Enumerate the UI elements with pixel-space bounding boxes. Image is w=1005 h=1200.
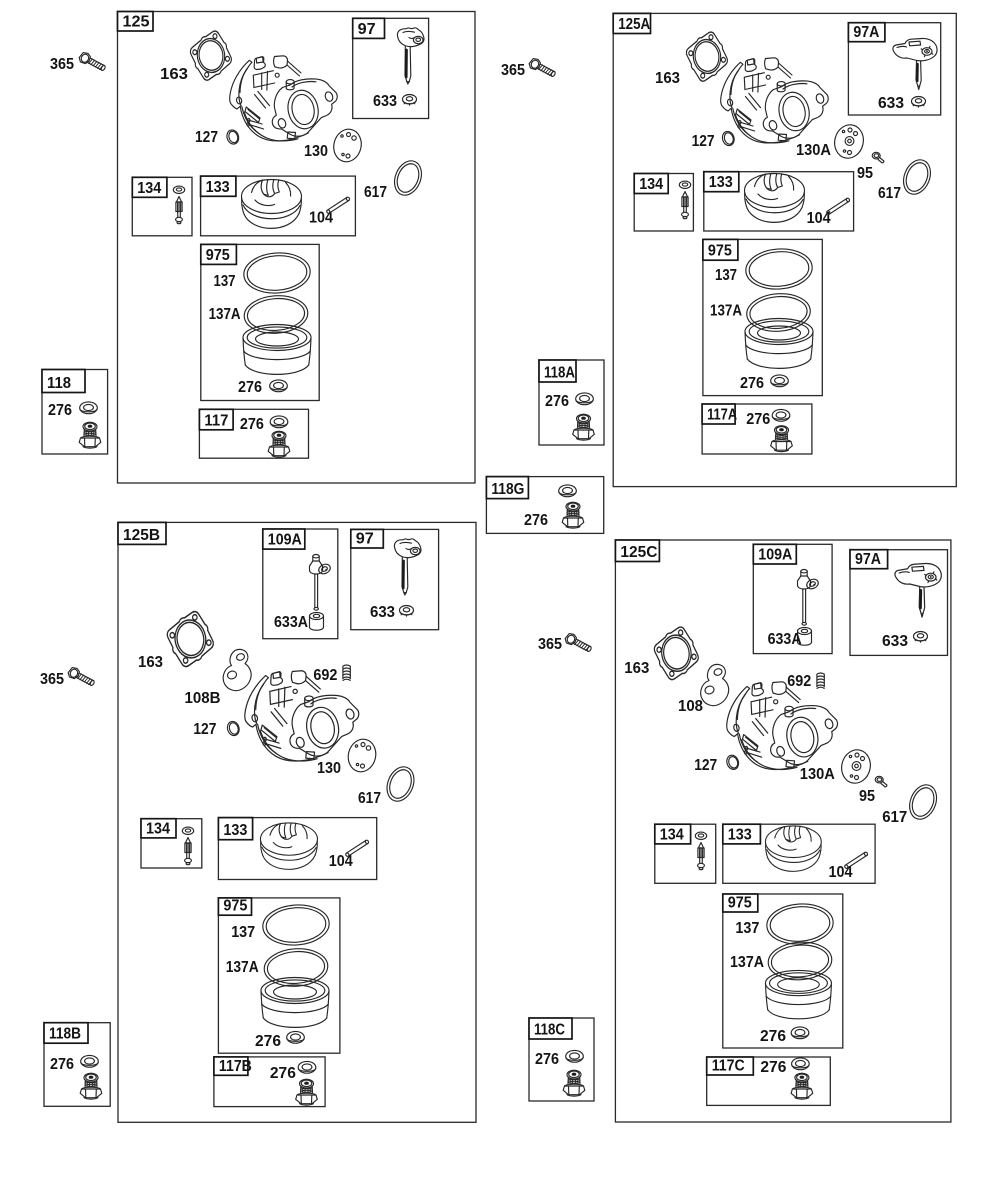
svg-text:134: 134 bbox=[137, 180, 161, 197]
svg-text:633: 633 bbox=[882, 633, 908, 650]
svg-text:118C: 118C bbox=[534, 1022, 565, 1039]
svg-text:276: 276 bbox=[760, 1059, 786, 1076]
svg-text:117B: 117B bbox=[219, 1058, 252, 1075]
svg-text:137: 137 bbox=[231, 924, 255, 941]
svg-text:133: 133 bbox=[728, 826, 752, 843]
svg-text:617: 617 bbox=[364, 184, 387, 201]
svg-text:117A: 117A bbox=[707, 407, 737, 424]
svg-text:97A: 97A bbox=[853, 24, 879, 41]
svg-text:633A: 633A bbox=[274, 614, 308, 631]
svg-text:134: 134 bbox=[146, 820, 170, 837]
svg-text:130A: 130A bbox=[800, 766, 835, 783]
svg-text:276: 276 bbox=[50, 1056, 74, 1073]
svg-text:163: 163 bbox=[655, 70, 680, 87]
svg-text:109A: 109A bbox=[268, 532, 302, 549]
svg-text:975: 975 bbox=[223, 898, 247, 915]
svg-text:127: 127 bbox=[195, 129, 218, 146]
svg-text:133: 133 bbox=[206, 179, 230, 196]
svg-text:95: 95 bbox=[857, 165, 873, 182]
svg-text:118: 118 bbox=[47, 375, 71, 392]
svg-text:108B: 108B bbox=[185, 690, 221, 707]
svg-text:125B: 125B bbox=[123, 527, 160, 544]
svg-text:134: 134 bbox=[660, 826, 684, 843]
svg-text:130: 130 bbox=[304, 143, 328, 160]
svg-text:365: 365 bbox=[40, 671, 64, 688]
svg-text:127: 127 bbox=[692, 133, 715, 150]
svg-text:633: 633 bbox=[878, 95, 904, 112]
svg-text:692: 692 bbox=[313, 667, 337, 684]
svg-text:137: 137 bbox=[214, 273, 236, 290]
svg-text:133: 133 bbox=[709, 174, 733, 191]
svg-text:975: 975 bbox=[728, 895, 752, 912]
svg-text:276: 276 bbox=[760, 1028, 786, 1045]
svg-text:130A: 130A bbox=[796, 142, 831, 159]
svg-text:276: 276 bbox=[524, 512, 548, 529]
svg-text:276: 276 bbox=[270, 1065, 296, 1082]
svg-text:133: 133 bbox=[223, 822, 247, 839]
svg-text:365: 365 bbox=[538, 636, 562, 653]
svg-text:617: 617 bbox=[882, 809, 907, 826]
svg-text:975: 975 bbox=[206, 247, 230, 264]
svg-text:97: 97 bbox=[358, 21, 376, 38]
svg-text:127: 127 bbox=[694, 757, 717, 774]
svg-text:276: 276 bbox=[535, 1051, 559, 1068]
svg-text:125A: 125A bbox=[618, 16, 650, 33]
svg-text:137: 137 bbox=[735, 920, 759, 937]
svg-text:276: 276 bbox=[240, 416, 264, 433]
svg-text:95: 95 bbox=[859, 788, 875, 805]
svg-text:137A: 137A bbox=[710, 303, 742, 320]
svg-text:365: 365 bbox=[50, 56, 74, 73]
svg-text:117: 117 bbox=[204, 412, 228, 429]
svg-text:276: 276 bbox=[255, 1033, 281, 1050]
svg-text:118B: 118B bbox=[49, 1026, 81, 1043]
svg-text:276: 276 bbox=[48, 402, 72, 419]
svg-text:97: 97 bbox=[356, 531, 374, 548]
svg-text:633A: 633A bbox=[768, 631, 802, 648]
svg-text:125: 125 bbox=[123, 14, 150, 31]
svg-text:633: 633 bbox=[373, 93, 397, 110]
svg-text:276: 276 bbox=[740, 375, 764, 392]
svg-text:617: 617 bbox=[878, 185, 901, 202]
svg-text:633: 633 bbox=[370, 604, 395, 621]
svg-text:617: 617 bbox=[358, 790, 381, 807]
svg-text:975: 975 bbox=[708, 243, 732, 260]
svg-text:276: 276 bbox=[545, 393, 569, 410]
svg-text:276: 276 bbox=[238, 379, 262, 396]
svg-text:163: 163 bbox=[624, 660, 649, 677]
svg-text:108: 108 bbox=[678, 698, 703, 715]
svg-text:163: 163 bbox=[138, 654, 163, 671]
svg-text:118G: 118G bbox=[491, 481, 524, 498]
svg-text:134: 134 bbox=[639, 176, 663, 193]
svg-text:365: 365 bbox=[501, 62, 525, 79]
svg-text:97A: 97A bbox=[855, 551, 881, 568]
svg-text:137A: 137A bbox=[730, 954, 764, 971]
svg-text:163: 163 bbox=[160, 66, 188, 83]
svg-text:118A: 118A bbox=[544, 365, 575, 382]
svg-text:137A: 137A bbox=[209, 306, 241, 323]
svg-text:137: 137 bbox=[715, 267, 737, 284]
svg-text:125C: 125C bbox=[620, 544, 657, 561]
svg-text:117C: 117C bbox=[712, 1058, 745, 1075]
svg-text:127: 127 bbox=[193, 721, 216, 738]
svg-text:130: 130 bbox=[317, 760, 341, 777]
svg-text:109A: 109A bbox=[758, 547, 792, 564]
svg-text:276: 276 bbox=[746, 411, 770, 428]
svg-text:137A: 137A bbox=[226, 959, 259, 976]
svg-text:692: 692 bbox=[787, 673, 811, 690]
